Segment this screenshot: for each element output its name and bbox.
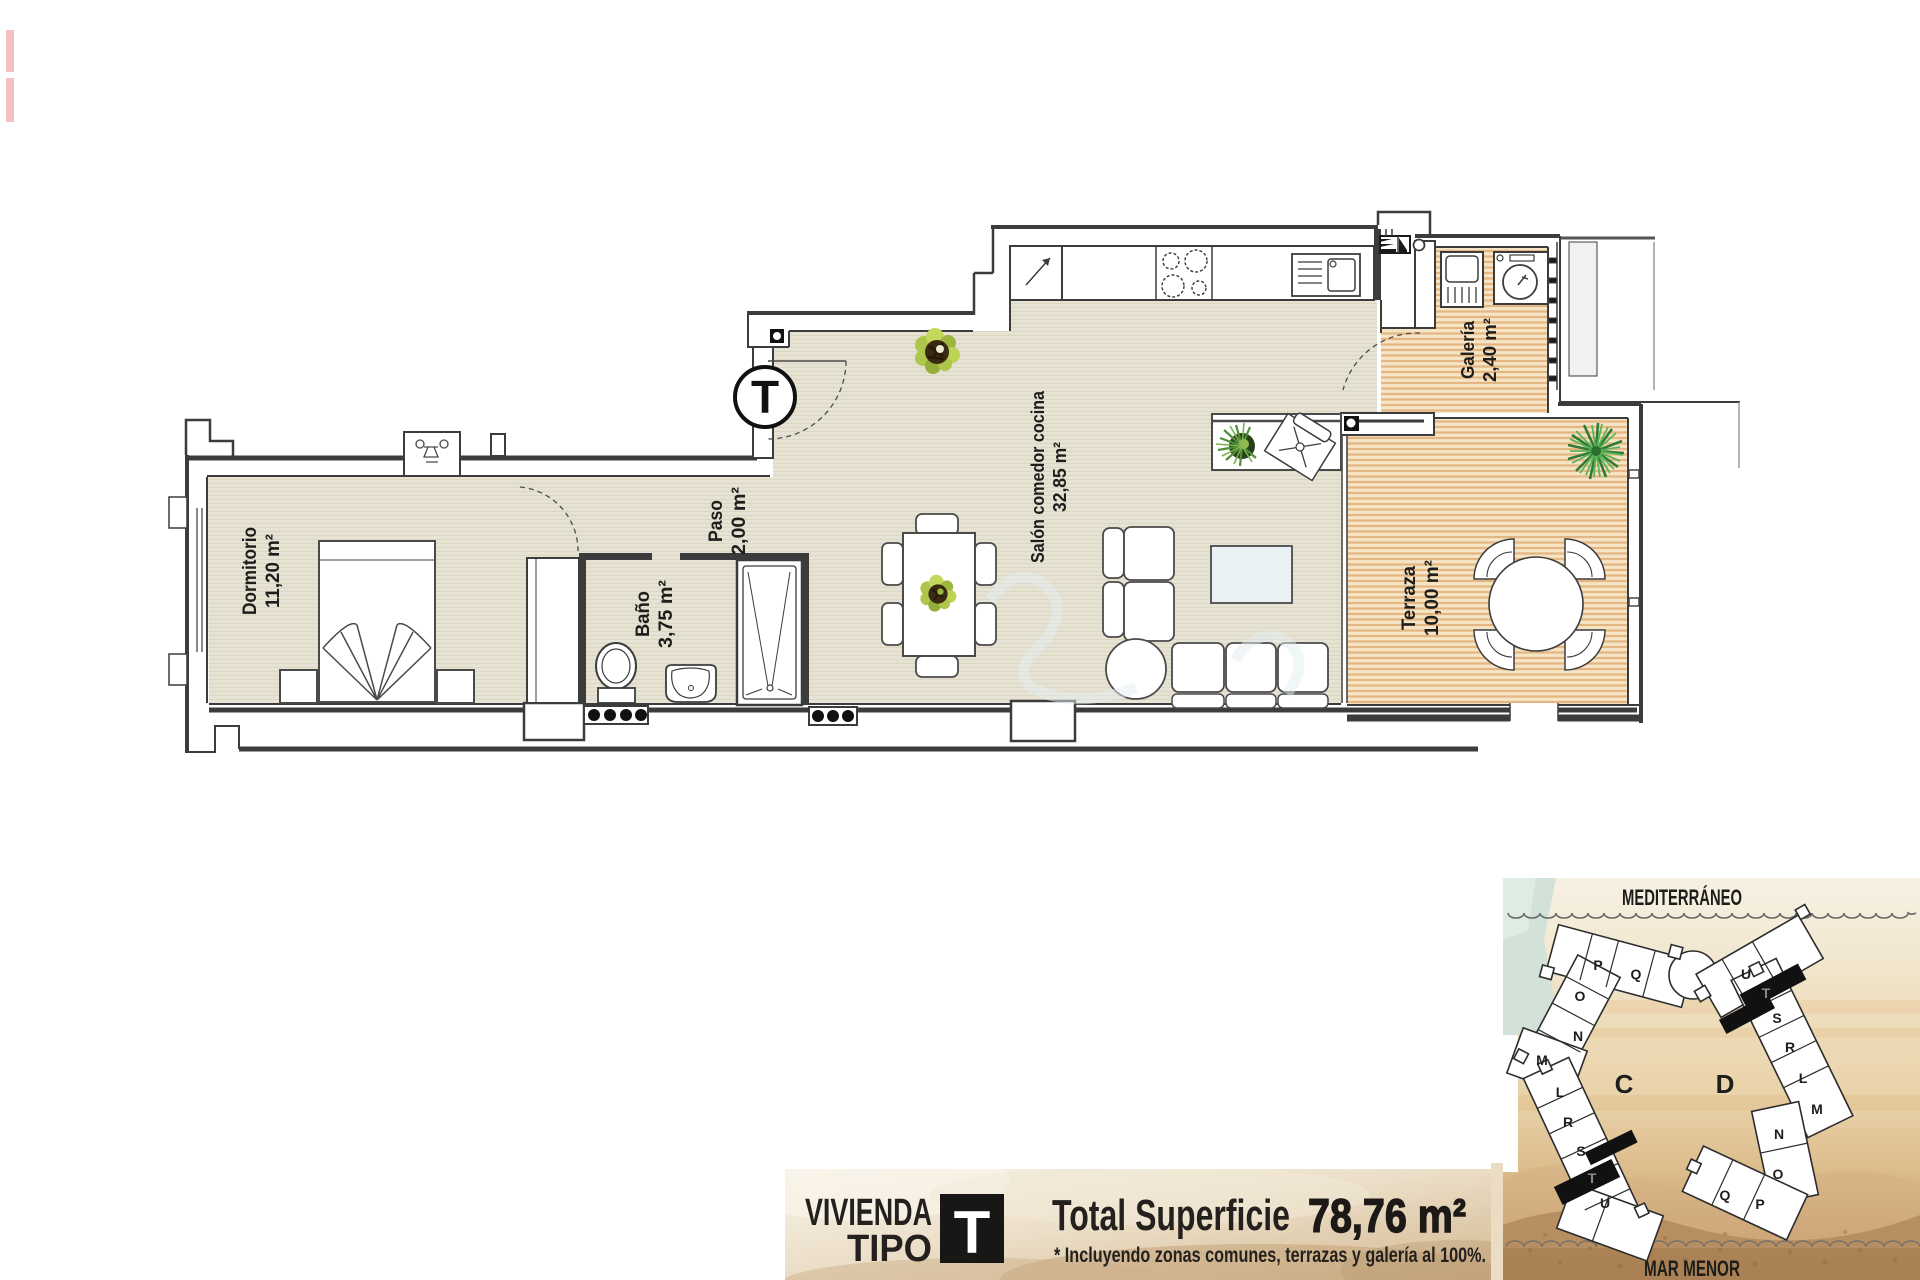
svg-text:Salón comedor cocina: Salón comedor cocina bbox=[1028, 390, 1048, 563]
svg-text:M: M bbox=[1536, 1052, 1548, 1068]
svg-text:D: D bbox=[1716, 1069, 1735, 1099]
svg-text:P: P bbox=[1593, 957, 1602, 973]
svg-text:Paso: Paso bbox=[706, 500, 727, 542]
svg-text:11,20 m²: 11,20 m² bbox=[263, 534, 284, 608]
svg-text:* Incluyendo zonas comunes, te: * Incluyendo zonas comunes, terrazas y g… bbox=[1054, 1244, 1486, 1267]
svg-text:Total Superficie: Total Superficie bbox=[1052, 1191, 1290, 1240]
svg-text:TIPO: TIPO bbox=[847, 1228, 932, 1270]
svg-text:Dormitorio: Dormitorio bbox=[240, 527, 261, 615]
svg-text:T: T bbox=[954, 1199, 991, 1266]
svg-text:T: T bbox=[1588, 1170, 1597, 1186]
svg-text:C: C bbox=[1615, 1069, 1634, 1099]
svg-text:2,40 m²: 2,40 m² bbox=[1480, 318, 1500, 382]
svg-text:N: N bbox=[1774, 1126, 1784, 1142]
svg-text:O: O bbox=[1773, 1166, 1784, 1182]
svg-text:Q: Q bbox=[1631, 966, 1642, 982]
svg-text:Baño: Baño bbox=[633, 591, 654, 637]
svg-text:O: O bbox=[1575, 988, 1586, 1004]
svg-text:N: N bbox=[1573, 1028, 1583, 1044]
svg-text:U: U bbox=[1741, 966, 1751, 982]
svg-text:L: L bbox=[1556, 1084, 1565, 1100]
svg-text:Q: Q bbox=[1720, 1187, 1731, 1203]
svg-text:Terraza: Terraza bbox=[1399, 566, 1420, 630]
svg-text:32,85 m²: 32,85 m² bbox=[1050, 442, 1070, 512]
svg-text:MEDITERRÁNEO: MEDITERRÁNEO bbox=[1622, 885, 1742, 910]
svg-text:U: U bbox=[1600, 1195, 1610, 1211]
svg-text:R: R bbox=[1785, 1039, 1795, 1055]
svg-text:T: T bbox=[1762, 985, 1771, 1001]
svg-text:MAR MENOR: MAR MENOR bbox=[1644, 1256, 1740, 1280]
svg-text:10,00 m²: 10,00 m² bbox=[1422, 560, 1443, 636]
svg-text:S: S bbox=[1772, 1010, 1781, 1026]
svg-text:R: R bbox=[1563, 1114, 1573, 1130]
svg-text:3,75 m²: 3,75 m² bbox=[656, 580, 677, 648]
svg-text:M: M bbox=[1811, 1101, 1823, 1117]
svg-text:Galería: Galería bbox=[1458, 320, 1478, 379]
svg-text:L: L bbox=[1799, 1070, 1808, 1086]
svg-text:S: S bbox=[1576, 1143, 1585, 1159]
svg-text:78,76 m²: 78,76 m² bbox=[1308, 1189, 1466, 1242]
svg-text:P: P bbox=[1755, 1196, 1764, 1212]
svg-text:T: T bbox=[751, 371, 779, 423]
svg-text:2,00 m²: 2,00 m² bbox=[729, 487, 750, 555]
